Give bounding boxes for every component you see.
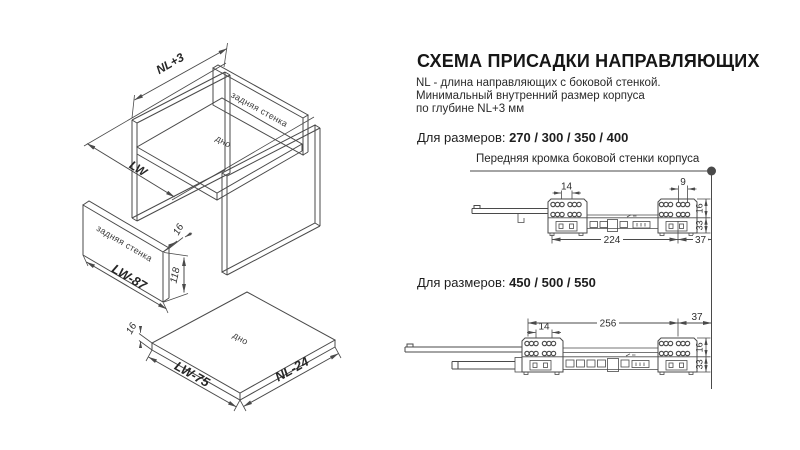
member-connector <box>515 358 522 373</box>
right-side-wall <box>222 125 320 275</box>
dim-front-label: 37 <box>695 235 707 246</box>
dim-length-label: 224 <box>604 235 621 246</box>
dim-h2-label: 33 <box>695 359 705 369</box>
drilling-scheme-page: задняя стенка дно NL+3 LW задняя стенка … <box>0 0 800 450</box>
sizes-small-values: 270 / 300 / 350 / 400 <box>509 130 628 145</box>
dim-depth-label: NL+3 <box>154 50 187 77</box>
sizes-small-label: Для размеров: <box>417 130 509 145</box>
dim-bottom-width-label: LW-75 <box>172 358 213 390</box>
description-line-1: NL - длина направляющих с боковой стенко… <box>416 77 661 89</box>
description-line-2: Минимальный внутренний размер корпуса <box>416 90 645 102</box>
slide-mechanism <box>590 215 650 232</box>
rail <box>405 344 522 352</box>
dim-front-label: 37 <box>691 312 703 323</box>
sizes-large-values: 450 / 500 / 550 <box>509 275 596 290</box>
dim-back-height-label: 118 <box>169 266 183 284</box>
sizes-large-heading: Для размеров: 450 / 500 / 550 <box>417 275 596 290</box>
dim-bottom-thickness-label: 16 <box>124 321 139 337</box>
mounting-holes <box>525 341 690 355</box>
back-panel-label: задняя стенка <box>229 90 289 129</box>
slide-drawing-small-sizes: 14 9 224 37 16 33 <box>472 177 712 246</box>
cabinet-isometric-view: задняя стенка дно NL+3 LW задняя стенка … <box>83 43 341 411</box>
dim-hole-pitch: 14 <box>527 322 561 339</box>
middle-member <box>452 362 515 370</box>
rail-hook <box>518 214 524 223</box>
dim-hole-pitch-label: 14 <box>561 182 573 193</box>
page-title: СХЕМА ПРИСАДКИ НАПРАВЛЯЮЩИХ <box>417 51 760 72</box>
dim-edge-offset-label: 9 <box>680 177 686 188</box>
dim-h2-label: 33 <box>695 220 705 230</box>
mounting-holes <box>551 202 690 216</box>
dim-h1-label: 16 <box>695 342 705 352</box>
dim-hole-pitch: 14 <box>553 182 582 200</box>
bottom-panel-exploded-label: дно <box>231 330 250 347</box>
dim-back-width-label: LW-87 <box>109 261 150 293</box>
dim-h1-label: 16 <box>695 203 705 213</box>
sizes-large-label: Для размеров: <box>417 275 509 290</box>
dim-width-label: LW <box>127 158 151 180</box>
dim-length-label: 256 <box>600 318 617 329</box>
slide-drawing-large-sizes: 14 256 37 16 33 <box>405 312 712 375</box>
dim-back-thickness-label: 16 <box>171 222 186 238</box>
rail <box>472 206 548 214</box>
description-line-3: по глубине NL+3 мм <box>416 103 524 115</box>
sizes-small-heading: Для размеров: 270 / 300 / 350 / 400 <box>417 130 628 145</box>
front-edge-callout: Передняя кромка боковой стенки корпуса <box>476 153 699 165</box>
bottom-panel-exploded: дно LW-75 NL-24 16 <box>124 292 341 411</box>
